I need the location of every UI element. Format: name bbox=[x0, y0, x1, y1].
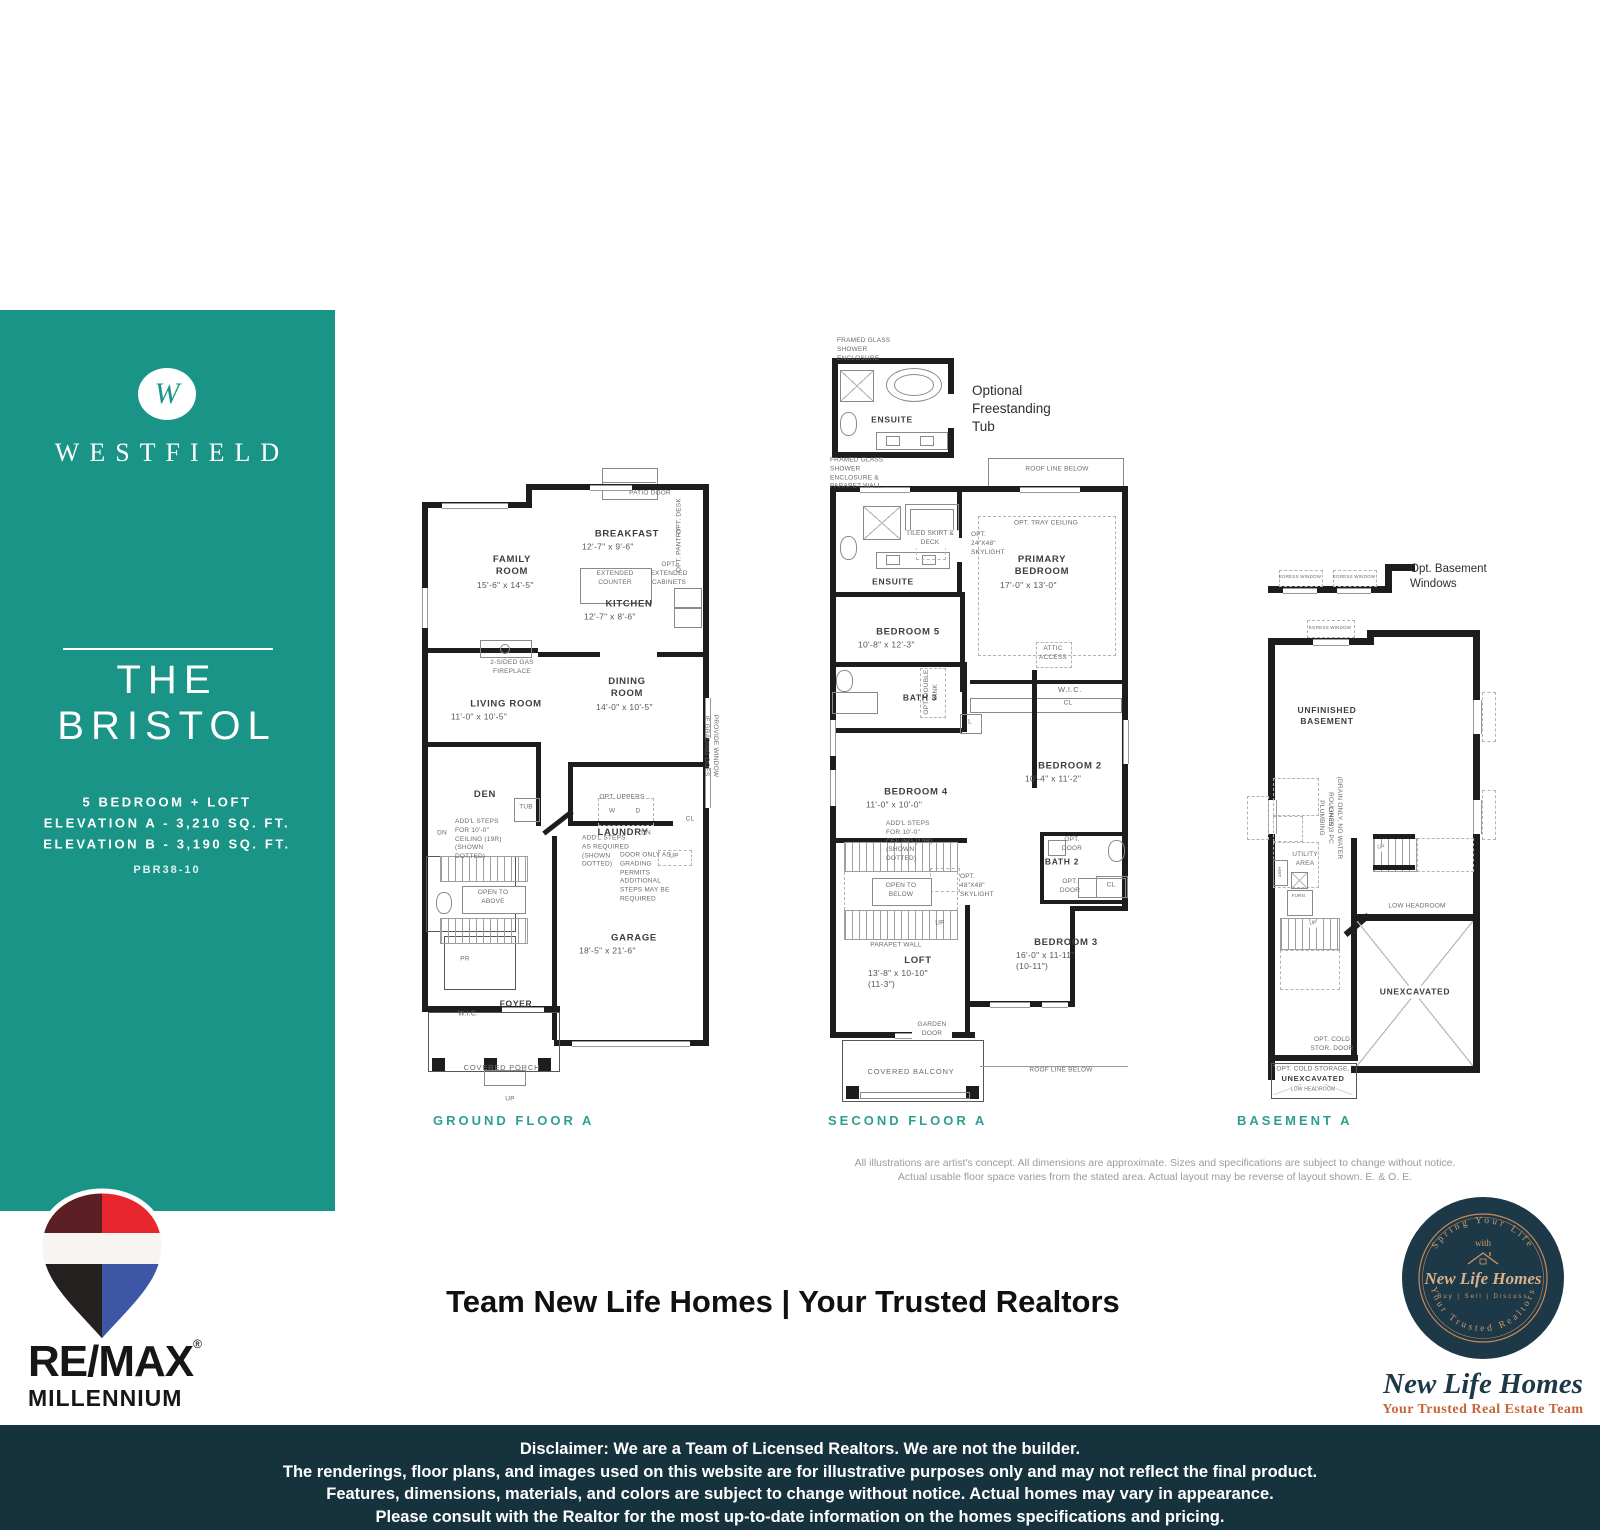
note-roof-line-bottom: ROOF LINE BELOW bbox=[1021, 1067, 1101, 1076]
basement-label: BASEMENT A bbox=[1237, 1113, 1352, 1128]
note-skylight48: OPT. 48"X48" SKYLIGHT bbox=[960, 873, 1000, 899]
note-cold-storage: OPT. COLD STORAGE, bbox=[1275, 1066, 1351, 1075]
fine-print-line2: Actual usable floor space varies from th… bbox=[760, 1171, 1550, 1185]
note-up: UP bbox=[505, 1096, 514, 1105]
room-dining: DINING ROOM 14'-0" x 10'-5" bbox=[596, 676, 658, 712]
note-dryer: D bbox=[636, 808, 641, 817]
room-unfinished-basement: UNFINISHED BASEMENT bbox=[1292, 705, 1362, 727]
note-provide-window: PROVIDE WINDOW IF GRADING DOES bbox=[701, 713, 719, 779]
note-egress-window: EGRESS WINDOW bbox=[1333, 574, 1375, 580]
note-up: UP bbox=[1376, 845, 1385, 852]
room-ensuite: ENSUITE bbox=[872, 576, 914, 587]
model-title-line1: THE bbox=[0, 657, 335, 703]
note-optional-tub: Optional Freestanding Tub bbox=[972, 382, 1072, 437]
note-egress-window: EGRESS WINDOW bbox=[1309, 625, 1351, 631]
divider bbox=[63, 648, 273, 650]
note-addl-steps: ADD'L STEPS FOR 10'-0" CEILING (19R) (SH… bbox=[455, 818, 513, 862]
note-rough-in2: (DRAIN ONLY, NO WATER LINES) bbox=[1325, 775, 1343, 861]
room-foyer: FOYER bbox=[500, 998, 533, 1009]
room-loft: LOFT 13'-8" x 10-10" (11-3") bbox=[868, 955, 968, 989]
note-patio-door: PATIO DOOR bbox=[620, 490, 680, 499]
remax-sub: MILLENNIUM bbox=[28, 1385, 182, 1412]
note-open-above: OPEN TO ABOVE bbox=[471, 889, 515, 907]
fine-print: All illustrations are artist's concept. … bbox=[760, 1157, 1550, 1184]
badge-services: Buy | Sell | Discuss bbox=[1437, 1294, 1528, 1300]
badge-name: New Life Homes bbox=[1423, 1269, 1541, 1288]
ground-floor-label: GROUND FLOOR A bbox=[433, 1113, 594, 1128]
room-garage: GARAGE 18'-5" x 21'-6" bbox=[579, 932, 689, 955]
room-unexcavated: UNEXCAVATED bbox=[1377, 985, 1454, 998]
room-porch: COVERED PORCH bbox=[464, 1063, 541, 1073]
note-opt-door: OPT. DOOR bbox=[1057, 878, 1083, 896]
note-fireplace: 2-SIDED GAS FIREPLACE bbox=[486, 659, 538, 677]
note-attic-access: ATTIC ACCESS bbox=[1036, 645, 1070, 663]
room-bed5: BEDROOM 5 10'-8" x 12'-3" bbox=[858, 626, 958, 649]
note-low-headroom: LOW HEADROOM bbox=[1291, 1087, 1336, 1094]
note-open-below: OPEN TO BELOW bbox=[879, 882, 923, 900]
badge-with: with bbox=[1475, 1238, 1492, 1248]
remax-name: RE/MAX bbox=[28, 1337, 193, 1386]
toilet-icon bbox=[1108, 840, 1125, 862]
note-dn: DN bbox=[641, 830, 651, 839]
toilet-icon bbox=[840, 412, 857, 436]
toilet-icon bbox=[836, 670, 853, 692]
note-opt-door: OPT. DOOR bbox=[1059, 836, 1085, 854]
note-up: UP bbox=[1308, 921, 1317, 928]
westfield-monogram-letter: W bbox=[155, 377, 180, 410]
toilet-icon bbox=[840, 536, 857, 560]
note-washer: W bbox=[609, 808, 615, 817]
spec-elevation-b: ELEVATION B - 3,190 SQ. FT. bbox=[0, 837, 335, 852]
new-life-homes-badge: Spring Your Life with New Life Homes Buy… bbox=[1398, 1190, 1568, 1366]
brand-sidebar: W WESTFIELD THE BRISTOL 5 BEDROOM + LOFT… bbox=[0, 310, 335, 1211]
room-bath2: BATH 2 bbox=[1045, 856, 1079, 867]
note-addl-steps: ADD'L STEPS FOR 10'-0" CEILING (19R) (SH… bbox=[886, 820, 942, 864]
note-garden-door: GARDEN DOOR bbox=[912, 1021, 952, 1039]
note-up: UP bbox=[669, 853, 678, 862]
fridge bbox=[674, 588, 702, 608]
shower-icon bbox=[840, 370, 874, 402]
stairs bbox=[440, 918, 528, 944]
disclaimer-line3: Features, dimensions, materials, and col… bbox=[0, 1483, 1600, 1506]
badge-script-name: New Life Homes bbox=[1375, 1368, 1591, 1401]
note-linen: L bbox=[968, 719, 972, 728]
spec-bedrooms: 5 BEDROOM + LOFT bbox=[0, 795, 335, 810]
note-opt-double-sink: OPT. DOUBLE SINK bbox=[923, 663, 941, 721]
wic-walls bbox=[444, 936, 516, 990]
basement-plan: EGRESS WINDOW EGRESS WINDOW Opt. Basemen… bbox=[1225, 550, 1495, 1115]
badge-script-tagline: Your Trusted Real Estate Team bbox=[1375, 1402, 1591, 1418]
room-pr: PR bbox=[460, 956, 469, 965]
room-utility: UTILITY AREA bbox=[1287, 851, 1323, 869]
note-hwt: HWT bbox=[1276, 867, 1282, 878]
room-wic: W.I.C. bbox=[1058, 685, 1082, 695]
note-framed-glass: FRAMED GLASS SHOWER ENCLOSURE bbox=[837, 337, 907, 363]
note-cl: CL bbox=[1064, 700, 1073, 709]
room-primary: PRIMARY BEDROOM 17'-0" x 13'-0" bbox=[1000, 554, 1084, 590]
disclaimer-line1: Disclaimer: We are a Team of Licensed Re… bbox=[0, 1438, 1600, 1461]
note-tub: TUB bbox=[519, 804, 533, 813]
disclaimer-line2: The renderings, floor plans, and images … bbox=[0, 1461, 1600, 1484]
room-wic: W.I.C. bbox=[458, 1009, 478, 1018]
note-up: UP bbox=[935, 920, 944, 929]
remax-balloon-icon bbox=[32, 1186, 172, 1346]
westfield-monogram-icon: W bbox=[138, 368, 196, 420]
registered-mark: ® bbox=[193, 1337, 202, 1351]
spec-elevation-a: ELEVATION A - 3,210 SQ. FT. bbox=[0, 816, 335, 831]
plan-code: PBR38-10 bbox=[0, 864, 335, 876]
note-low-headroom: LOW HEADROOM bbox=[1382, 903, 1452, 912]
tub bbox=[832, 692, 878, 714]
note-tiled-skirt: TILED SKIRT & DECK bbox=[901, 530, 959, 548]
note-egress-window: EGRESS WINDOW bbox=[1279, 574, 1321, 580]
room-bed2: BEDROOM 2 10'-4" x 11'-2" bbox=[1025, 760, 1115, 783]
note-tray-ceiling: OPT. TRAY CEILING bbox=[1011, 520, 1081, 529]
room-family: FAMILY ROOM 15'-6" x 14'-5" bbox=[477, 554, 547, 590]
fine-print-line1: All illustrations are artist's concept. … bbox=[760, 1157, 1550, 1171]
note-cold-unexcavated: UNEXCAVATED bbox=[1279, 1074, 1346, 1084]
note-parapet: PARAPET WALL bbox=[866, 942, 926, 951]
note-dn: DN bbox=[437, 830, 447, 839]
disclaimer-bar: Disclaimer: We are a Team of Licensed Re… bbox=[0, 1425, 1600, 1530]
room-living: LIVING ROOM 11'-0" x 10'-5" bbox=[451, 698, 561, 721]
note-cl: CL bbox=[686, 816, 695, 825]
shower-icon bbox=[863, 506, 901, 540]
disclaimer-line4: Please consult with the Realtor for the … bbox=[0, 1506, 1600, 1529]
second-floor-label: SECOND FLOOR A bbox=[828, 1113, 987, 1128]
brand-name: WESTFIELD bbox=[45, 438, 289, 468]
note-roof-line-top: ROOF LINE BELOW bbox=[1017, 466, 1097, 475]
room-kitchen: KITCHEN 12'-7" x 8'-6" bbox=[584, 598, 674, 621]
model-title-line2: BRISTOL bbox=[0, 703, 335, 749]
room-bed3: BEDROOM 3 16'-0" x 11-11" (10-11") bbox=[1016, 937, 1116, 971]
note-opt-uppers: OPT. UPPERS bbox=[597, 794, 647, 803]
team-banner: Team New Life Homes | Your Trusted Realt… bbox=[428, 1284, 1138, 1320]
note-cl: CL bbox=[1107, 882, 1116, 891]
room-balcony: COVERED BALCONY bbox=[867, 1067, 954, 1077]
note-framed-glass-parapet: FRAMED GLASS SHOWER ENCLOSURE & PARAPET … bbox=[830, 456, 894, 491]
second-floor-plan: FRAMED GLASS SHOWER ENCLOSURE ENSUITE Op… bbox=[820, 340, 1135, 1115]
remax-wordmark: RE/MAX® bbox=[28, 1337, 208, 1387]
note-opt-basement-windows: Opt. Basement Windows bbox=[1410, 562, 1500, 592]
ground-floor-plan: FAMILY ROOM 15'-6" x 14'-5" BREAKFAST 12… bbox=[422, 468, 714, 1128]
note-opt-pantry: OPT. PANTRY bbox=[676, 527, 685, 573]
room-breakfast: BREAKFAST 12'-7" x 9'-6" bbox=[582, 528, 672, 551]
room-ensuite-inset: ENSUITE bbox=[871, 414, 913, 425]
note-extended-counter: EXTENDED COUNTER bbox=[584, 570, 646, 588]
room-bed4: BEDROOM 4 11'-0" x 10'-0" bbox=[866, 786, 966, 809]
room-den: DEN bbox=[474, 789, 496, 801]
closet-strip bbox=[970, 698, 1122, 713]
note-furn: FURN. bbox=[1292, 893, 1307, 899]
note-cold-door: OPT. COLD STOR. DOOR bbox=[1310, 1036, 1354, 1054]
